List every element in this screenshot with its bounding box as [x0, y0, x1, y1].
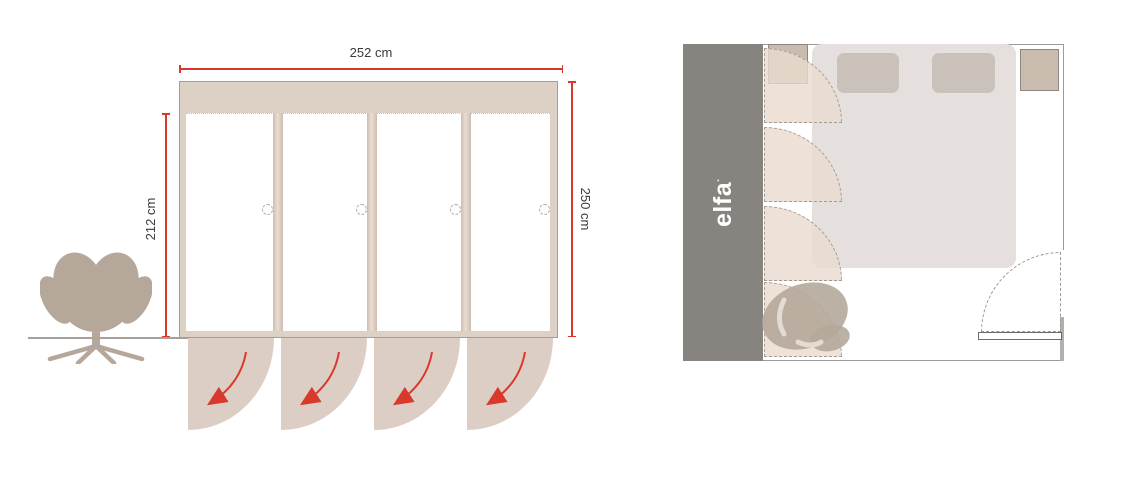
room-door-leaf	[978, 332, 1062, 340]
width-dimension-label: 252 cm	[179, 46, 563, 60]
dimension-tick	[162, 113, 170, 115]
chair-top-view	[760, 278, 855, 363]
door-swing-arc	[374, 338, 460, 430]
door-swing-arc	[188, 338, 274, 430]
total-height-dimension-line	[571, 81, 573, 337]
door-handle-icon	[450, 204, 461, 215]
door-divider	[461, 113, 471, 331]
door-divider	[273, 113, 283, 331]
brand-logo: elfa·	[709, 178, 738, 227]
door-handle-icon	[356, 204, 367, 215]
wardrobe-top-view: elfa·	[683, 44, 763, 361]
swing-arrow-icon	[374, 338, 460, 430]
dimension-tick	[562, 65, 564, 73]
nightstand	[1020, 49, 1059, 91]
canvas: 252 cm 212 cm 250 cm	[0, 0, 1132, 493]
chair-illustration	[40, 242, 152, 364]
dimension-tick	[568, 336, 576, 338]
dimension-tick	[568, 81, 576, 83]
brand-mark: ·	[713, 178, 724, 182]
total-height-dimension-label: 250 cm	[578, 174, 592, 244]
dimension-tick	[179, 65, 181, 73]
door-swing-arc	[281, 338, 367, 430]
door-height-dimension-line	[165, 113, 167, 337]
door-swing-arc	[467, 338, 553, 430]
swing-arrow-icon	[188, 338, 274, 430]
pillow	[837, 53, 899, 93]
brand-text: elfa	[709, 182, 737, 227]
swing-arrow-icon	[281, 338, 367, 430]
width-dimension-line	[179, 68, 563, 70]
swing-arrow-icon	[467, 338, 553, 430]
door-handle-icon	[539, 204, 550, 215]
door-handle-icon	[262, 204, 273, 215]
pillow	[932, 53, 995, 93]
door-divider	[367, 113, 377, 331]
